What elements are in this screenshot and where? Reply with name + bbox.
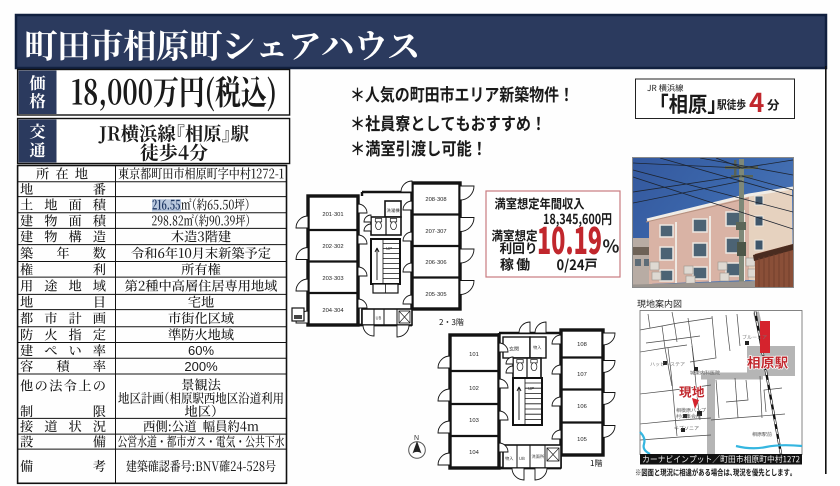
svg-text:108: 108 [577,342,587,348]
svg-text:60%: 60% [188,343,214,358]
svg-text:106: 106 [577,404,587,410]
svg-text:102: 102 [469,386,479,392]
svg-text:202·302: 202·302 [322,244,343,250]
svg-text:105: 105 [577,437,587,443]
svg-text:UP: UP [528,386,534,391]
svg-text:107: 107 [577,372,587,378]
svg-text:200%: 200% [184,359,218,374]
svg-text:UP: UP [386,246,392,251]
svg-text:203·303: 203·303 [322,276,343,282]
svg-text:207·307: 207·307 [425,229,446,235]
svg-text:208·308: 208·308 [425,197,446,203]
svg-text:204·304: 204·304 [322,308,344,314]
svg-text:104: 104 [469,450,479,456]
svg-text:103: 103 [469,418,479,424]
svg-text:206·306: 206·306 [425,260,446,266]
svg-text:N: N [414,435,419,442]
svg-text:201·301: 201·301 [322,212,343,218]
svg-text:205·305: 205·305 [425,292,446,298]
svg-text:101: 101 [469,352,479,358]
